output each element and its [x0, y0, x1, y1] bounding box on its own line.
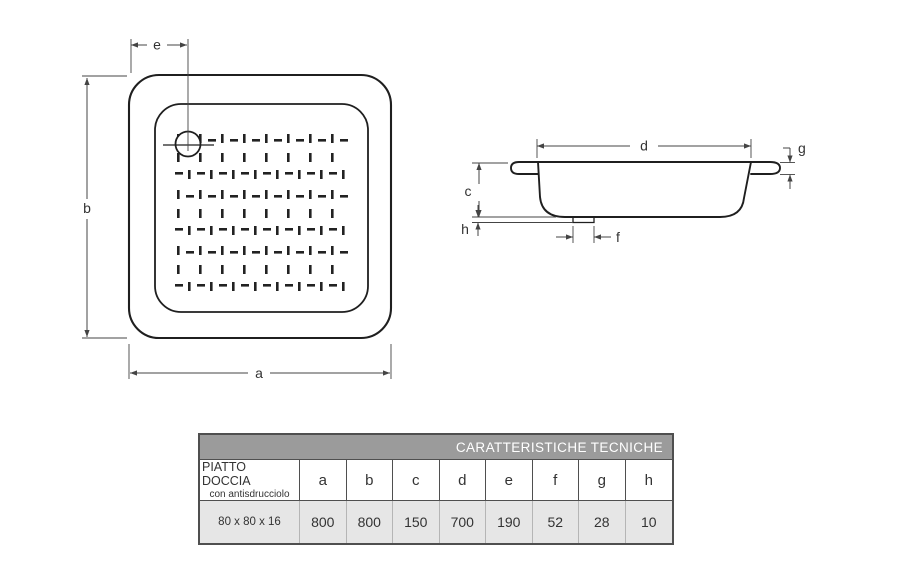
col-header-g: g: [579, 460, 626, 501]
dimension-b: b: [82, 76, 127, 338]
dim-label-f: f: [616, 229, 620, 245]
antislip-pattern: [174, 132, 351, 300]
dim-label-b: b: [83, 200, 91, 216]
value-a: 800: [300, 501, 347, 543]
spec-table: CARATTERISTICHE TECNICHE PIATTO DOCCIA c…: [198, 433, 674, 545]
value-b: 800: [347, 501, 394, 543]
top-view: e b a: [82, 37, 391, 382]
product-name: PIATTO DOCCIA: [202, 460, 297, 489]
value-f: 52: [533, 501, 580, 543]
dimension-c: c: [465, 163, 509, 217]
col-header-a: a: [300, 460, 347, 501]
size-cell: 80 x 80 x 16: [200, 501, 300, 543]
col-header-f: f: [533, 460, 580, 501]
col-header-c: c: [393, 460, 440, 501]
value-d: 700: [440, 501, 487, 543]
col-header-d: d: [440, 460, 487, 501]
table-title: CARATTERISTICHE TECNICHE: [200, 435, 672, 460]
dimension-d: d: [537, 138, 751, 159]
product-label-cell: PIATTO DOCCIA con antisdrucciolo: [200, 460, 300, 501]
value-e: 190: [486, 501, 533, 543]
dimension-e: e: [131, 37, 187, 74]
col-header-e: e: [486, 460, 533, 501]
dim-label-a: a: [255, 365, 263, 381]
value-g: 28: [579, 501, 626, 543]
dimension-a: a: [129, 344, 391, 381]
dimension-g: g: [780, 140, 806, 189]
col-header-b: b: [347, 460, 394, 501]
dim-label-e: e: [153, 37, 161, 53]
dimension-h: h: [461, 205, 573, 237]
dim-label-c: c: [465, 183, 472, 199]
dim-label-d: d: [640, 138, 648, 154]
page: e b a: [0, 0, 900, 577]
value-h: 10: [626, 501, 673, 543]
col-header-h: h: [626, 460, 673, 501]
tray-body-profile: [538, 162, 751, 217]
dim-label-g: g: [798, 140, 806, 156]
rim-profile: [511, 162, 780, 174]
dimension-f: f: [556, 226, 620, 245]
dim-label-h: h: [461, 221, 469, 237]
section-view: d c h: [461, 138, 806, 246]
value-c: 150: [393, 501, 440, 543]
product-subtitle: con antisdrucciolo: [209, 489, 289, 501]
